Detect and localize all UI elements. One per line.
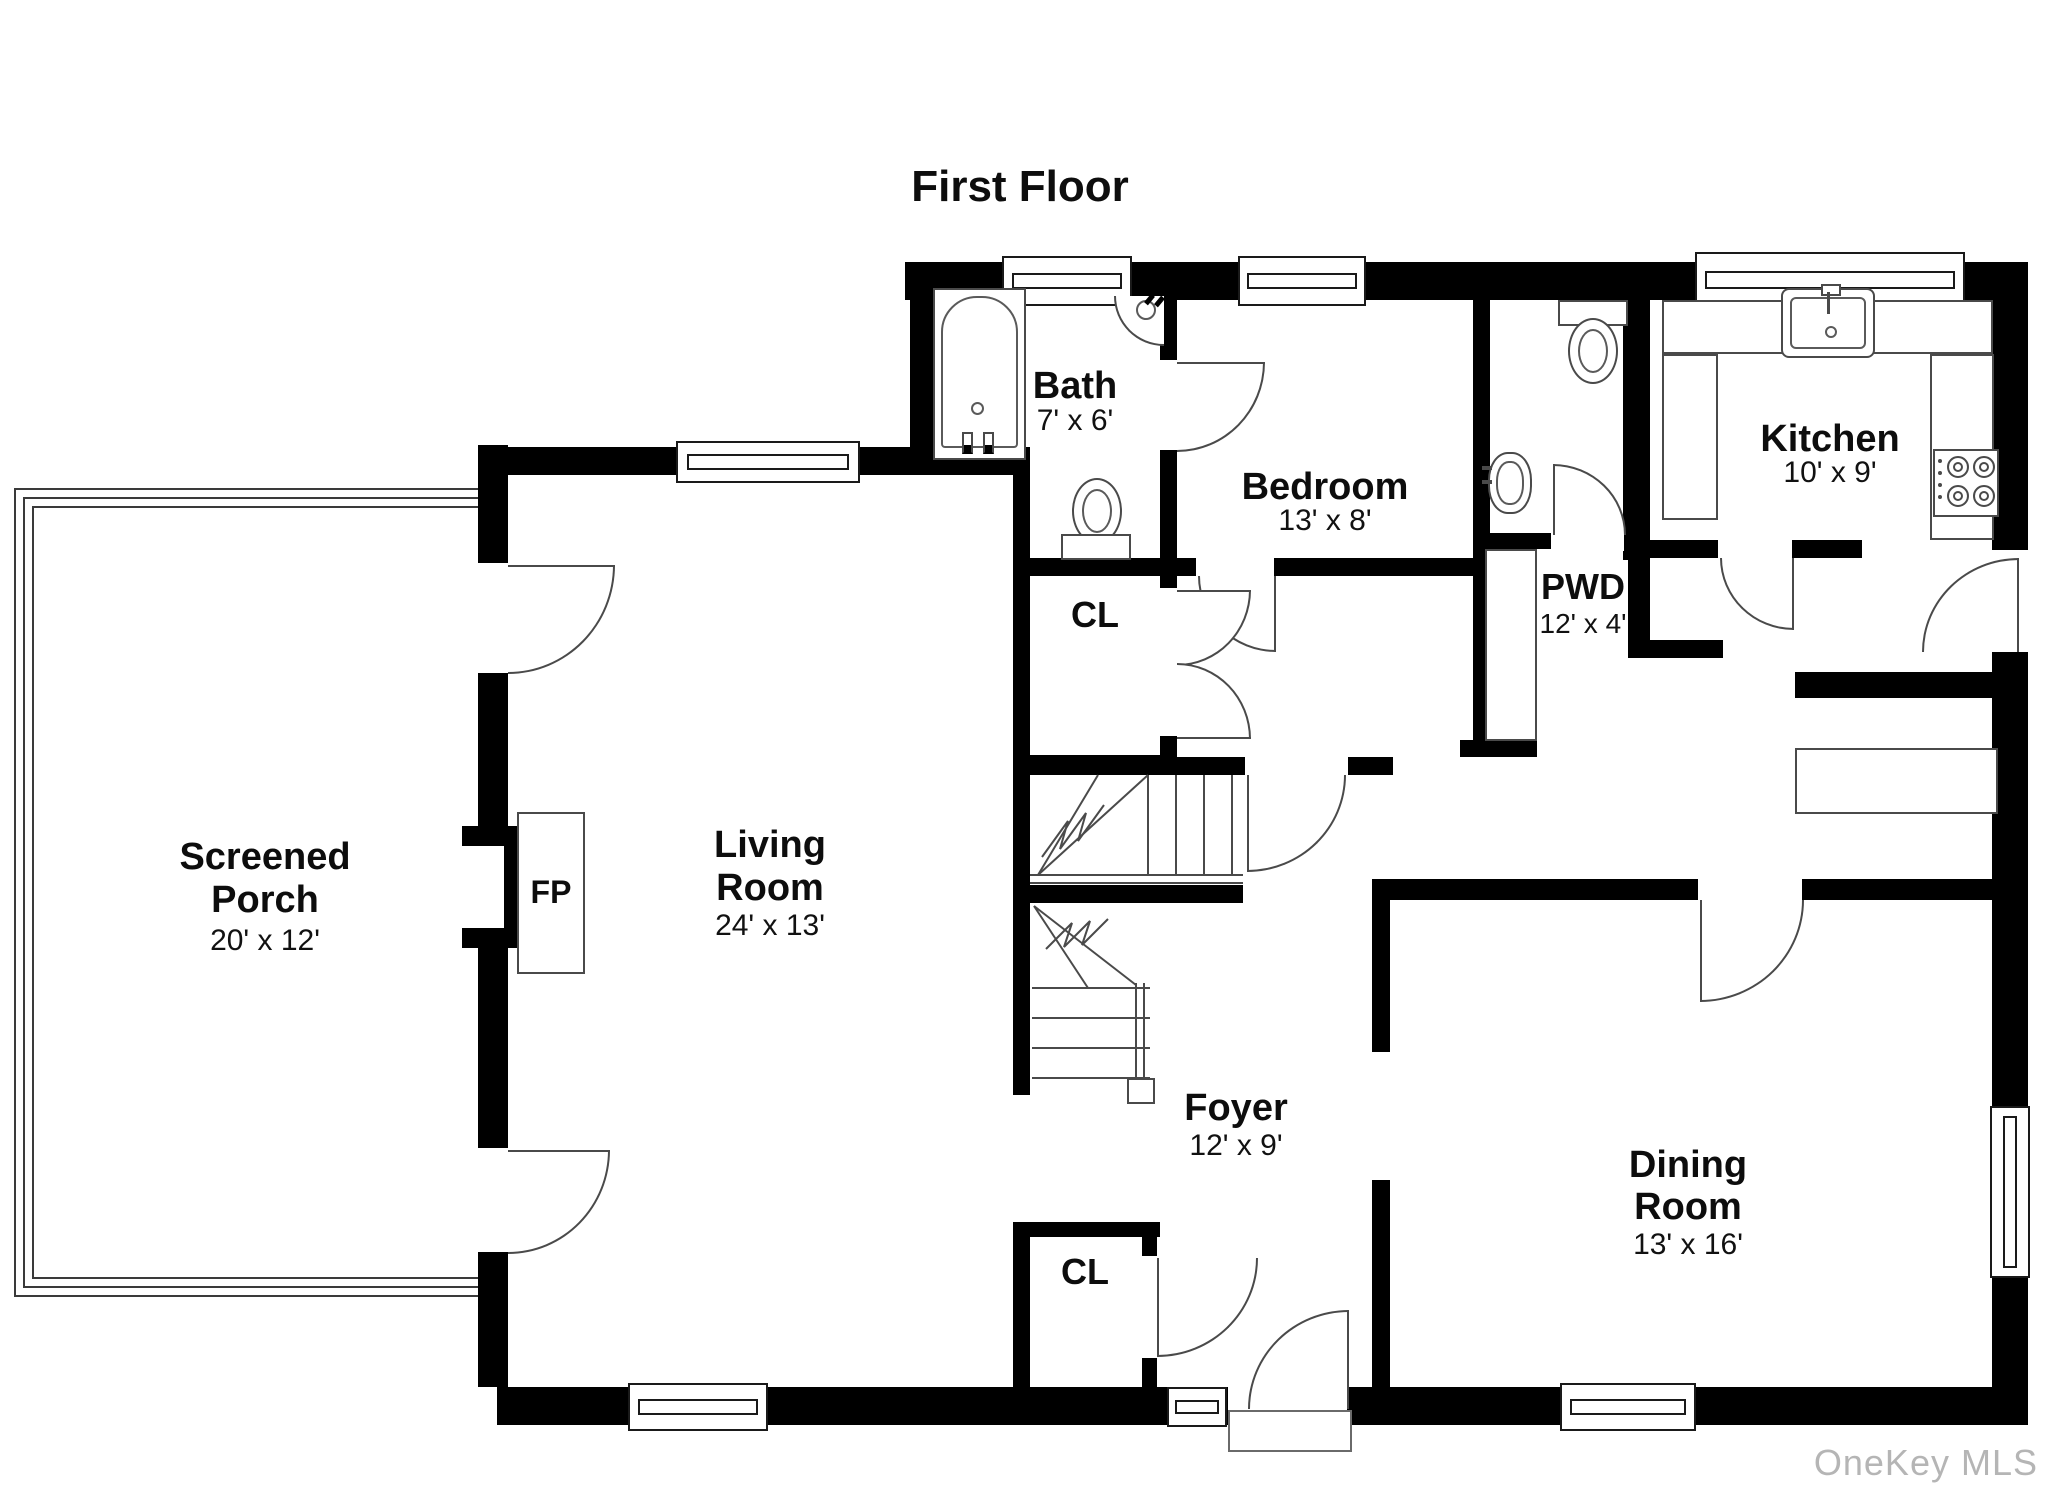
- dining-room-label-line2: Room: [1634, 1188, 1742, 1226]
- wall-living-foyer-divider-lower: [1013, 1222, 1030, 1387]
- wall-kitchen-south-left: [1640, 540, 1720, 558]
- opening-bedroom: [1196, 556, 1274, 578]
- wall-dining-north: [1372, 879, 2012, 900]
- bathtub-drain: [971, 402, 984, 415]
- opening-porch-living-lower: [476, 1148, 510, 1252]
- wall-foyer-dining-divider-lower: [1372, 1180, 1390, 1387]
- living-room-label-line2: Room: [716, 869, 824, 907]
- kitchen-label: Kitchen: [1760, 420, 1899, 458]
- stove-burner: [1973, 456, 1995, 478]
- pwd-label: PWD: [1541, 569, 1625, 605]
- wall-kitchen-south-right: [1790, 540, 1862, 558]
- porch-dims: 20' x 12': [210, 926, 320, 956]
- bath-corner-sink: [1114, 296, 1164, 346]
- bedroom-label: Bedroom: [1242, 468, 1409, 506]
- porch-label-line2: Porch: [211, 881, 319, 919]
- pwd-dims: 12' x 4': [1540, 610, 1627, 638]
- kitchen-counter-left: [1662, 354, 1718, 520]
- wall-corridor-west: [1628, 558, 1650, 658]
- kitchen-dims: 10' x 9': [1783, 458, 1876, 488]
- dining-room-label-line1: Dining: [1629, 1146, 1747, 1184]
- living-room-south-window: [628, 1383, 768, 1431]
- door-porch-living-lower: [508, 1150, 610, 1254]
- closet-upper-label: CL: [1071, 597, 1119, 633]
- front-door-stoop: [1228, 1410, 1352, 1452]
- dining-room-dims: 13' x 16': [1633, 1230, 1743, 1260]
- door-porch-living-upper: [508, 565, 615, 674]
- bathtub-basin: [941, 296, 1018, 448]
- stove-knob: [1938, 471, 1942, 475]
- stove-knob: [1938, 459, 1942, 463]
- faucet-icon: [1482, 466, 1492, 470]
- door-front-entry: [1248, 1310, 1349, 1409]
- living-room-north-window: [676, 441, 860, 483]
- door-bath-bedroom: [1177, 362, 1265, 452]
- wall-closet-lower-north: [1028, 1222, 1160, 1237]
- wall-pwd-east: [1623, 300, 1650, 560]
- stove-burner: [1947, 485, 1969, 507]
- faucet-icon: [1482, 480, 1492, 484]
- bath-label: Bath: [1033, 367, 1117, 405]
- stove-knob: [1938, 495, 1942, 499]
- window-pane: [1247, 273, 1356, 290]
- floor-plan: First Floor FP: [0, 0, 2048, 1489]
- door-side-entry: [1922, 558, 2019, 652]
- opening-hall-foyer: [1245, 755, 1345, 777]
- door-kitchen-corridor: [1720, 558, 1794, 630]
- opening-dining: [1698, 877, 1802, 902]
- opening-kitchen-corridor: [1718, 538, 1792, 560]
- pwd-sink: [1488, 452, 1532, 514]
- fireplace-label: FP: [531, 876, 572, 908]
- pwd-toilet-bowl: [1568, 318, 1618, 384]
- door-pwd: [1553, 464, 1626, 535]
- wall-nook-south: [1460, 740, 1537, 757]
- stove: [1933, 449, 1999, 517]
- window-pane: [1570, 1399, 1686, 1415]
- bathtub-faucet-handle: [983, 432, 994, 454]
- door-hall-foyer: [1247, 775, 1346, 872]
- wall-hall-south-right: [1348, 757, 1393, 775]
- wall-bath-south: [1028, 558, 1177, 576]
- window-pane: [2003, 1116, 2017, 1267]
- bathtub-faucet-handle: [962, 432, 973, 454]
- page-title: First Floor: [911, 162, 1129, 212]
- staircase: [1028, 753, 1248, 1108]
- bath-toilet-tank: [1061, 534, 1131, 560]
- foyer-sidelight-window: [1167, 1387, 1227, 1427]
- opening-bath-bedroom: [1158, 360, 1179, 450]
- bath-dims: 7' x 6': [1037, 406, 1114, 436]
- closet-lower-label: CL: [1061, 1254, 1109, 1290]
- sink-basin: [1496, 461, 1524, 505]
- window-pane: [638, 1399, 758, 1415]
- stove-burner: [1947, 456, 1969, 478]
- living-room-dims: 24' x 13': [715, 911, 825, 941]
- chimney-firebox-opening: [458, 846, 504, 928]
- living-room-label-line1: Living: [714, 826, 826, 864]
- kitchen-faucet-stem: [1827, 292, 1830, 314]
- window-pane: [1012, 273, 1123, 290]
- door-closet-upper-leaf1: [1177, 590, 1251, 666]
- kitchen-faucet: [1821, 284, 1841, 296]
- kitchen-sink: [1781, 288, 1875, 358]
- bathtub: [933, 288, 1026, 460]
- bedroom-dims: 13' x 8': [1278, 506, 1371, 536]
- opening-porch-living-upper: [476, 563, 510, 673]
- dining-south-window: [1560, 1383, 1696, 1431]
- window-pane: [687, 454, 849, 469]
- bedroom-window: [1238, 256, 1366, 306]
- opening-closet-upper: [1158, 588, 1179, 736]
- stove-burner: [1973, 485, 1995, 507]
- sink-drain: [1825, 326, 1837, 338]
- wall-mudroom-south: [1795, 672, 1995, 698]
- stove-knob: [1938, 483, 1942, 487]
- door-closet-upper-leaf2: [1177, 663, 1251, 739]
- toilet-bowl-inner: [1578, 329, 1608, 373]
- faucet-icon: [1154, 296, 1165, 308]
- door-closet-lower: [1157, 1258, 1258, 1357]
- watermark: OneKey MLS: [1814, 1442, 2038, 1484]
- foyer-dims: 12' x 9': [1189, 1131, 1282, 1161]
- wall-foyer-dining-divider-upper: [1372, 879, 1390, 1052]
- foyer-label: Foyer: [1184, 1089, 1287, 1127]
- wall-corridor-south: [1650, 640, 1723, 658]
- kitchen-peninsula-counter: [1795, 748, 1998, 814]
- window-pane: [1175, 1400, 1220, 1414]
- door-dining: [1700, 900, 1804, 1002]
- pwd-closet-counter: [1485, 549, 1537, 741]
- porch-label-line1: Screened: [179, 838, 350, 876]
- toilet-bowl-inner: [1082, 489, 1112, 533]
- dining-east-window: [1990, 1106, 2030, 1278]
